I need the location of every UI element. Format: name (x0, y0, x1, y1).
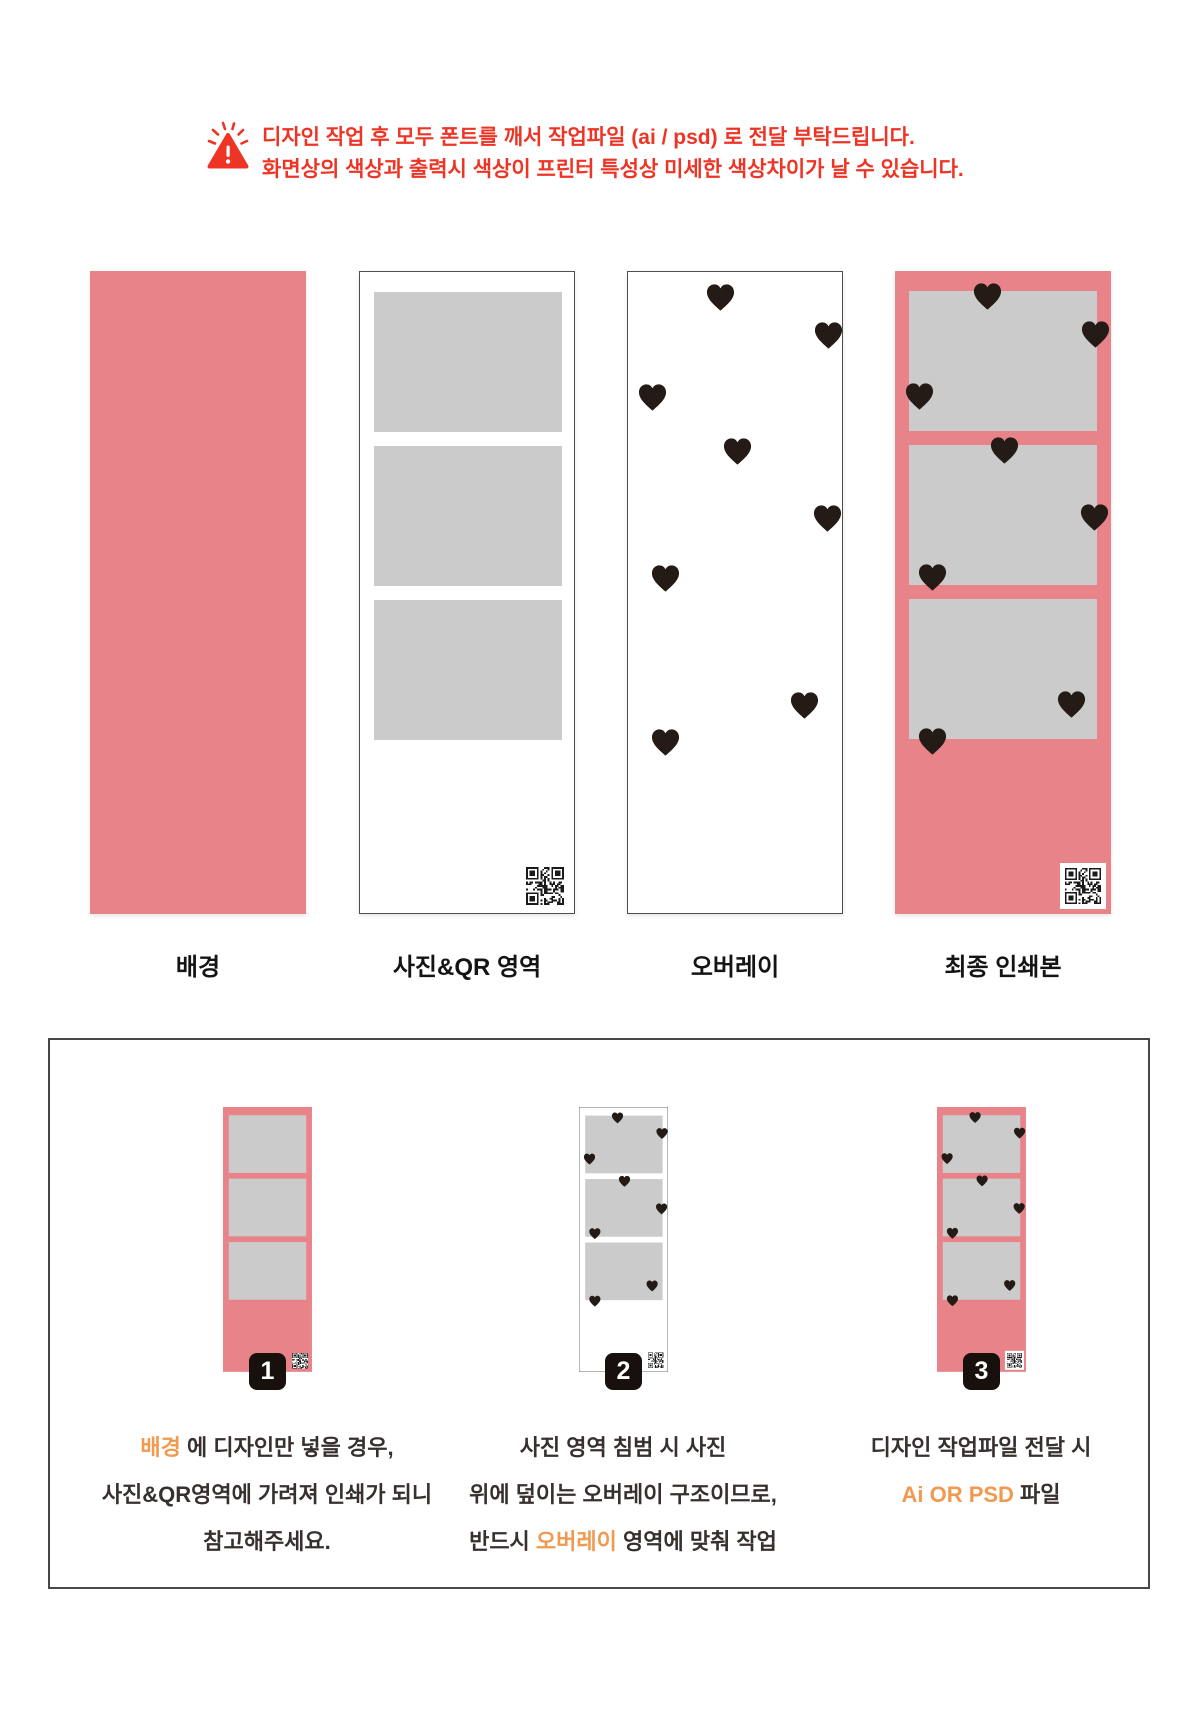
photo-placeholder (374, 446, 562, 586)
photo-placeholder (229, 1242, 306, 1300)
photo-placeholder (374, 600, 562, 740)
qr-backing (1060, 863, 1106, 909)
heart-icon (941, 1152, 954, 1166)
qr-backing (1005, 1351, 1024, 1370)
step-caption-3: 디자인 작업파일 전달 시Ai OR PSD 파일 (771, 1424, 1191, 1518)
heart-icon (789, 689, 820, 722)
heart-icon (655, 1202, 668, 1216)
panel-col-final: 최종 인쇄본 (895, 271, 1111, 914)
design-guide-page: 디자인 작업 후 모두 폰트를 깨서 작업파일 (ai / psd) 로 전달 … (0, 0, 1200, 1725)
heart-icon (813, 319, 844, 352)
heart-icon (976, 1174, 989, 1188)
warning-line-1: 디자인 작업 후 모두 폰트를 깨서 작업파일 (ai / psd) 로 전달 … (262, 122, 964, 154)
heart-icon (637, 381, 668, 414)
heart-icon (1013, 1126, 1026, 1140)
heart-icon (705, 281, 736, 314)
warning-icon (204, 120, 252, 170)
heart-icon (656, 1127, 669, 1141)
panel-col-background: 배경 (90, 271, 306, 914)
heart-icon (722, 435, 753, 468)
photo-placeholder (374, 292, 562, 432)
photo-qr-panel (359, 271, 575, 914)
hearts-overlay (937, 1107, 1026, 1372)
heart-icon (650, 726, 681, 759)
heart-icon (583, 1152, 596, 1166)
qr-code (1065, 868, 1101, 904)
qr-code (648, 1352, 664, 1368)
step-badge-2: 2 (605, 1353, 642, 1390)
heart-icon (969, 1111, 982, 1125)
heart-icon (1013, 1202, 1026, 1216)
heart-icon (989, 434, 1020, 467)
panel-label-overlay: 오버레이 (627, 947, 843, 982)
photo-placeholder (229, 1179, 306, 1237)
caption-line: Ai OR PSD 파일 (771, 1471, 1191, 1518)
heart-icon (1080, 318, 1111, 351)
step-caption-2: 사진 영역 침범 시 사진위에 덮이는 오버레이 구조이므로,반드시 오버레이 … (413, 1424, 833, 1565)
qr-code (292, 1353, 308, 1369)
final-print-panel (895, 271, 1111, 914)
caption-line: 반드시 오버레이 영역에 맞춰 작업 (413, 1518, 833, 1565)
hearts-overlay (579, 1107, 667, 1371)
overlay-panel (627, 271, 843, 914)
panel-label-background: 배경 (90, 947, 306, 982)
heart-icon (650, 562, 681, 595)
warning-line-2: 화면상의 색상과 출력시 색상이 프린터 특성상 미세한 색상차이가 날 수 있… (262, 154, 964, 186)
heart-icon (1079, 501, 1110, 534)
qr-code (526, 867, 564, 905)
heart-icon (917, 725, 948, 758)
heart-icon (618, 1175, 631, 1189)
hearts-overlay (895, 271, 1111, 914)
photo-placeholder (229, 1115, 306, 1173)
qr-code (1007, 1353, 1022, 1368)
heart-icon (946, 1294, 959, 1308)
heart-icon (1003, 1279, 1016, 1293)
heart-icon (588, 1294, 601, 1308)
heart-icon (588, 1227, 601, 1241)
hearts-overlay (628, 272, 842, 913)
panel-label-photo-qr: 사진&QR 영역 (359, 947, 575, 982)
caption-line: 디자인 작업파일 전달 시 (771, 1424, 1191, 1471)
heart-icon (946, 1226, 959, 1240)
step-badge-3: 3 (963, 1353, 1000, 1390)
heart-icon (972, 280, 1003, 313)
step-badge-1: 1 (249, 1353, 286, 1390)
heart-icon (917, 561, 948, 594)
panel-col-photo-qr: 사진&QR 영역 (359, 271, 575, 914)
heart-icon (812, 502, 843, 535)
heart-icon (646, 1279, 659, 1293)
warning-text: 디자인 작업 후 모두 폰트를 깨서 작업파일 (ai / psd) 로 전달 … (262, 122, 964, 185)
panel-col-overlay: 오버레이 (627, 271, 843, 914)
mini-strip-1 (223, 1107, 312, 1372)
mini-strip-3 (937, 1107, 1026, 1372)
heart-icon (1056, 688, 1087, 721)
heart-icon (904, 380, 935, 413)
heart-icon (611, 1111, 624, 1125)
caption-line: 사진 영역 침범 시 사진 (413, 1424, 833, 1471)
caption-line: 위에 덮이는 오버레이 구조이므로, (413, 1471, 833, 1518)
panel-label-final: 최종 인쇄본 (895, 947, 1111, 982)
mini-strip-2 (579, 1107, 668, 1372)
background-panel (90, 271, 306, 914)
